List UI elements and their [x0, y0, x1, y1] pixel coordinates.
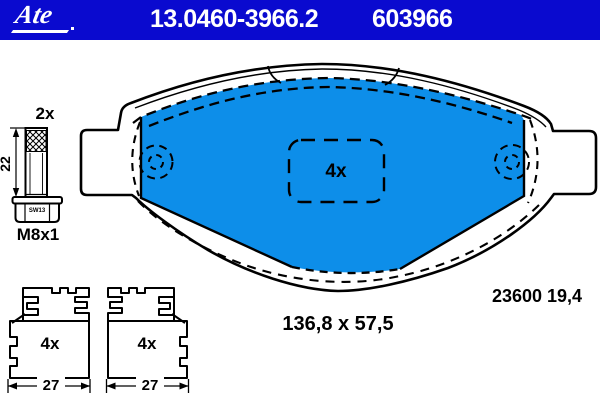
clip-right-quantity-label: 4x: [128, 334, 166, 354]
clip-top-bar: [23, 288, 89, 321]
bolt-wrench-size-label: SW13: [26, 208, 48, 214]
drawing-canvas: [0, 0, 600, 400]
clip-right-width-label: 27: [136, 377, 164, 394]
technical-drawing-page: Ate 13.0460-3966.2 603966: [0, 0, 600, 400]
bolt-knurl: [27, 131, 47, 152]
bolt-length-label: 22: [0, 151, 17, 177]
bolt-dim-arrow-up: [13, 128, 19, 137]
clip-left-width-label: 27: [37, 377, 65, 394]
ate-logo-registered-dot: [71, 27, 74, 30]
pad-kit-quantity-label: 4x: [314, 161, 358, 183]
bolt-quantity-label: 2x: [27, 104, 63, 124]
pad-size-label: 136,8 x 57,5: [266, 313, 410, 336]
pad-reference-label: 23600 19,4: [484, 286, 590, 307]
clip-left: [10, 288, 89, 378]
article-code: 603966: [372, 5, 452, 34]
clip-zigzag: [23, 297, 38, 315]
bolt-dim-arrow-down: [13, 188, 19, 197]
ate-logo-underline: [11, 30, 69, 33]
clip-left-quantity-label: 4x: [31, 334, 69, 354]
bolt-thread-label: M8x1: [9, 225, 67, 245]
part-number: 13.0460-3966.2: [150, 5, 318, 34]
clip-right: [108, 288, 187, 378]
ate-logo: Ate: [13, 1, 55, 29]
